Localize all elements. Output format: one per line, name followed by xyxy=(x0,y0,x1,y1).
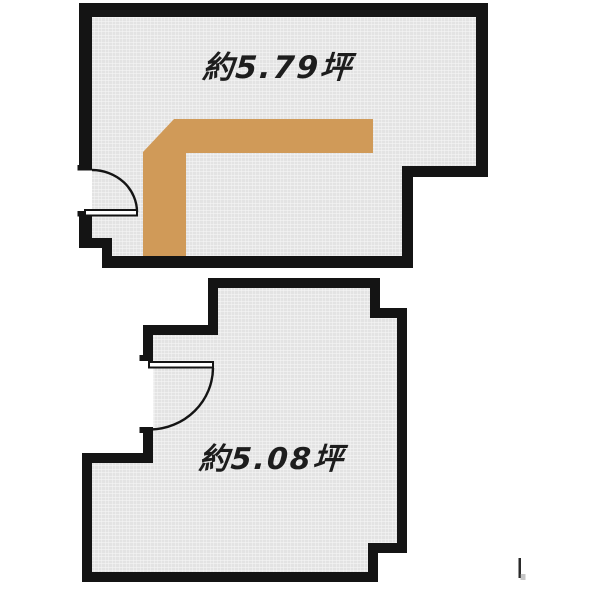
lower-door-opening xyxy=(141,361,154,427)
lower-door-jamb-top xyxy=(140,355,154,361)
upper-door-opening xyxy=(77,171,92,212)
lower-door-jamb-bottom xyxy=(140,427,154,433)
floorplan-drawing xyxy=(0,0,600,600)
lower-area-label: 約5.08坪 xyxy=(182,434,361,478)
upper-area-label: 約5.79坪 xyxy=(184,42,371,87)
lower-unit-plan xyxy=(82,278,407,582)
corner-artifact xyxy=(519,558,526,580)
lower-door-leaf xyxy=(149,362,213,368)
upper-door-jamb-top xyxy=(78,165,92,171)
upper-door-leaf xyxy=(85,210,137,216)
lower-floor xyxy=(92,288,397,572)
artifact-smudge xyxy=(521,574,526,580)
floorplan-canvas: 約5.79坪 約5.08坪 xyxy=(0,0,600,600)
